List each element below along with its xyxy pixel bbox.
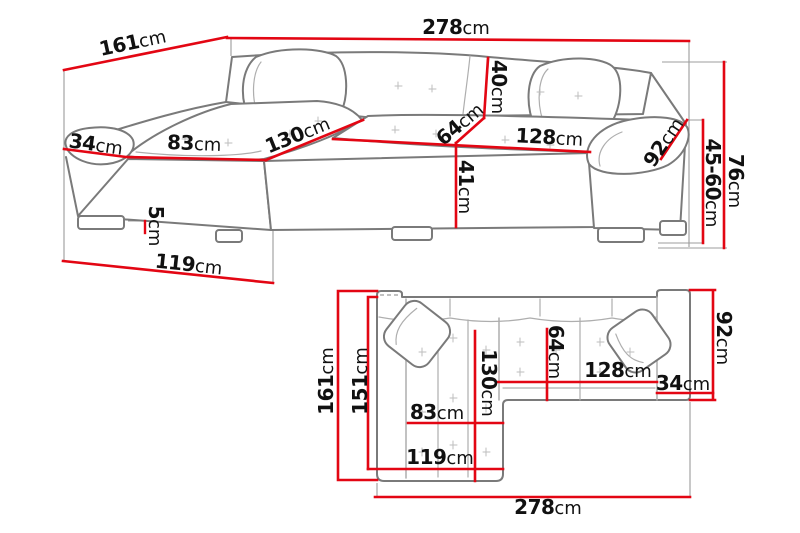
dim-label-total-depth: 161cm <box>314 347 338 415</box>
plan-view: 161cm 151cm 83cm 119cm 130cm 64cm 128cm … <box>314 290 736 519</box>
dim-label-arm-width: 34cm <box>656 371 710 395</box>
dim-label-total-width: 278cm <box>514 495 582 519</box>
dim-label-chaise-seat-width: 83cm <box>410 400 464 424</box>
dim-label-total-width: 278cm <box>422 15 490 39</box>
dim-label-chaise-length: 130cm <box>477 349 501 417</box>
leg <box>216 230 242 242</box>
leg <box>660 221 686 235</box>
dim-label-inner-depth: 151cm <box>348 347 372 415</box>
dim-label-front-height: 41cm <box>454 160 478 214</box>
leg <box>78 216 124 229</box>
dim-label-seat-height-range: 45-60cm <box>701 139 725 228</box>
dim-label-body-depth: 92cm <box>712 311 736 365</box>
main-front-face <box>264 153 596 230</box>
leg <box>598 228 644 242</box>
sofa-dimension-diagram: 161cm 278cm 34cm 83cm 130cm 40cm 64cm 12… <box>0 0 800 533</box>
diagram-canvas: 161cm 278cm 34cm 83cm 130cm 40cm 64cm 12… <box>0 0 800 533</box>
dim-label-chaise-seat-width: 83cm <box>167 130 222 156</box>
dim-label-total-height: 76cm <box>724 154 748 208</box>
dim-label-seat-width: 128cm <box>584 358 652 382</box>
perspective-view: 161cm 278cm 34cm 83cm 130cm 40cm 64cm 12… <box>63 15 748 283</box>
dim-label-seat-depth: 64cm <box>544 325 568 379</box>
leg <box>392 227 432 240</box>
dim-label-leg-height: 5cm <box>144 206 168 247</box>
front-left-edge <box>66 157 78 216</box>
dim-label-backrest-height: 40cm <box>487 60 511 114</box>
dim-label-chaise-front-width: 119cm <box>154 249 224 280</box>
dim-label-chaise-width: 119cm <box>406 445 474 469</box>
